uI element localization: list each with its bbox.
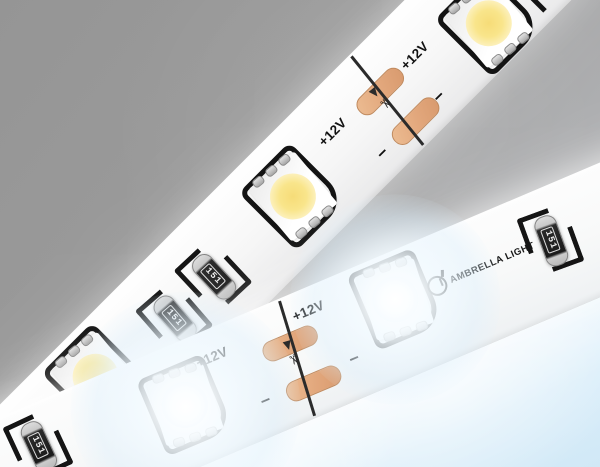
cool-led <box>344 245 448 354</box>
led-pin <box>167 367 181 379</box>
solder-pad-minus <box>283 362 345 404</box>
voltage-label: +12V <box>290 297 326 324</box>
cool-led-die <box>366 270 424 328</box>
brand-name: AMBRELLA LIGHT <box>448 240 536 286</box>
cool-led <box>133 351 237 460</box>
minus-label: − <box>259 395 272 408</box>
voltage-label: +12V <box>316 115 350 149</box>
solder-pad-minus <box>388 93 444 149</box>
voltage-label: +12V <box>398 39 432 73</box>
brand-logo-tick <box>441 270 444 277</box>
brand-logo: AMBRELLA LIGHT <box>424 236 538 299</box>
warm-led <box>432 0 547 81</box>
brand-logo-mark <box>438 278 443 286</box>
led-pin <box>415 320 429 332</box>
led-pin <box>151 372 165 384</box>
led-pin <box>460 0 475 5</box>
minus-label: − <box>376 146 390 160</box>
led-pin <box>204 425 218 437</box>
led-pin <box>362 267 376 279</box>
led-strip-product-image: 151 151 <box>0 0 600 467</box>
voltage-label: +12V <box>194 344 230 371</box>
led-pin <box>394 256 408 268</box>
resistor: 151 <box>2 407 74 467</box>
led-package <box>248 151 338 242</box>
warm-led <box>236 139 351 254</box>
minus-label: − <box>348 353 361 366</box>
led-pin <box>378 261 392 273</box>
resistor: 151 <box>516 202 584 277</box>
cool-led-die <box>156 376 214 434</box>
